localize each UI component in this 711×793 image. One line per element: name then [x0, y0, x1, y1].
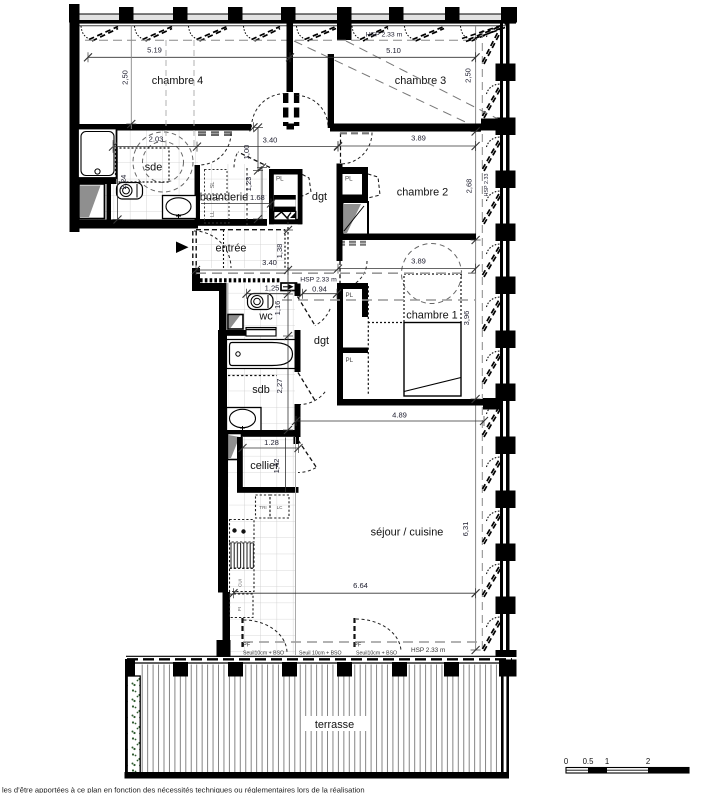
svg-text:3.89: 3.89	[411, 257, 426, 266]
svg-text:séjour / cuisine: séjour / cuisine	[371, 527, 444, 539]
svg-text:PL: PL	[346, 357, 354, 364]
svg-text:dgt: dgt	[314, 335, 329, 347]
svg-text:FI: FI	[237, 607, 242, 611]
svg-text:PL: PL	[276, 176, 284, 183]
svg-text:terrasse: terrasse	[315, 719, 354, 731]
svg-text:5.10: 5.10	[386, 46, 401, 55]
svg-text:buanderie: buanderie	[200, 192, 248, 204]
svg-text:1,42: 1,42	[272, 459, 281, 474]
svg-text:Seuil10cm + BSO: Seuil10cm + BSO	[243, 650, 284, 656]
svg-text:2.03: 2.03	[149, 135, 164, 144]
svg-text:3.40: 3.40	[263, 136, 278, 145]
svg-text:1,38: 1,38	[275, 244, 284, 259]
svg-text:PF: PF	[243, 643, 251, 649]
svg-text:3,96: 3,96	[462, 311, 471, 326]
svg-text:HSP 2.33: HSP 2.33	[484, 174, 490, 197]
svg-text:SL: SL	[210, 182, 216, 189]
svg-text:0: 0	[564, 757, 569, 766]
svg-text:LC: LC	[277, 505, 284, 510]
svg-text:6,31: 6,31	[461, 522, 470, 537]
svg-text:2: 2	[646, 757, 650, 766]
svg-text:1: 1	[605, 757, 609, 766]
svg-text:chambre 3: chambre 3	[395, 75, 446, 87]
svg-text:sde: sde	[145, 162, 163, 174]
svg-text:PL: PL	[345, 176, 353, 183]
svg-text:6.64: 6.64	[353, 581, 368, 590]
svg-text:1,16: 1,16	[273, 301, 282, 316]
svg-text:wc: wc	[258, 311, 273, 323]
svg-text:2,27: 2,27	[275, 379, 284, 394]
svg-text:5.19: 5.19	[147, 46, 162, 55]
svg-text:2,50: 2,50	[121, 70, 130, 85]
svg-text:HSP 2.33 m: HSP 2.33 m	[411, 647, 445, 654]
svg-text:TRI: TRI	[259, 505, 266, 510]
svg-text:chambre 4: chambre 4	[152, 75, 203, 87]
svg-text:1.68: 1.68	[250, 193, 265, 202]
svg-text:4.89: 4.89	[392, 411, 407, 420]
svg-text:2,24: 2,24	[119, 175, 128, 190]
svg-text:les d’être apportées à ce plan: les d’être apportées à ce plan en foncti…	[2, 786, 365, 793]
svg-text:chambre 2: chambre 2	[397, 187, 448, 199]
svg-text:1.28: 1.28	[264, 438, 279, 447]
svg-text:HSP 2.33 m: HSP 2.33 m	[366, 32, 403, 39]
svg-text:2,50: 2,50	[464, 68, 473, 83]
svg-text:dgt: dgt	[312, 191, 327, 203]
svg-text:PF: PF	[354, 643, 362, 649]
svg-text:0.94: 0.94	[312, 285, 327, 294]
svg-text:1,00: 1,00	[242, 145, 251, 160]
svg-text:PL: PL	[346, 292, 354, 299]
svg-text:1,23: 1,23	[244, 177, 253, 192]
svg-text:sdb: sdb	[252, 384, 270, 396]
svg-text:LL: LL	[210, 211, 216, 217]
svg-text:2,68: 2,68	[465, 179, 474, 194]
svg-text:entrée: entrée	[216, 243, 247, 255]
svg-text:HSP 2.33 m: HSP 2.33 m	[300, 277, 337, 284]
svg-text:Seuil 10cm + BSO: Seuil 10cm + BSO	[299, 650, 342, 656]
svg-text:chambre 1: chambre 1	[406, 310, 457, 322]
svg-text:1,25: 1,25	[265, 284, 280, 293]
svg-text:CUI: CUI	[238, 579, 243, 587]
svg-text:Seuil10cm + BSO: Seuil10cm + BSO	[356, 650, 397, 656]
svg-text:3.89: 3.89	[411, 134, 426, 143]
svg-text:0.5: 0.5	[583, 757, 595, 766]
